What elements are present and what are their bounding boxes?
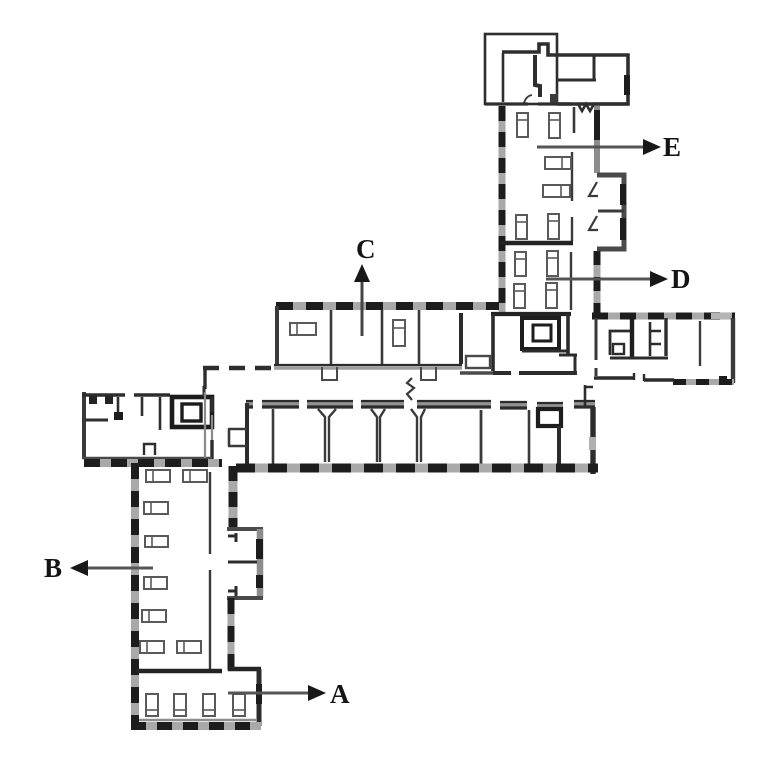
svg-text:A: A — [330, 679, 350, 709]
svg-text:E: E — [663, 132, 681, 162]
svg-text:B: B — [44, 553, 62, 583]
svg-text:D: D — [671, 264, 691, 294]
svg-text:C: C — [356, 234, 376, 264]
